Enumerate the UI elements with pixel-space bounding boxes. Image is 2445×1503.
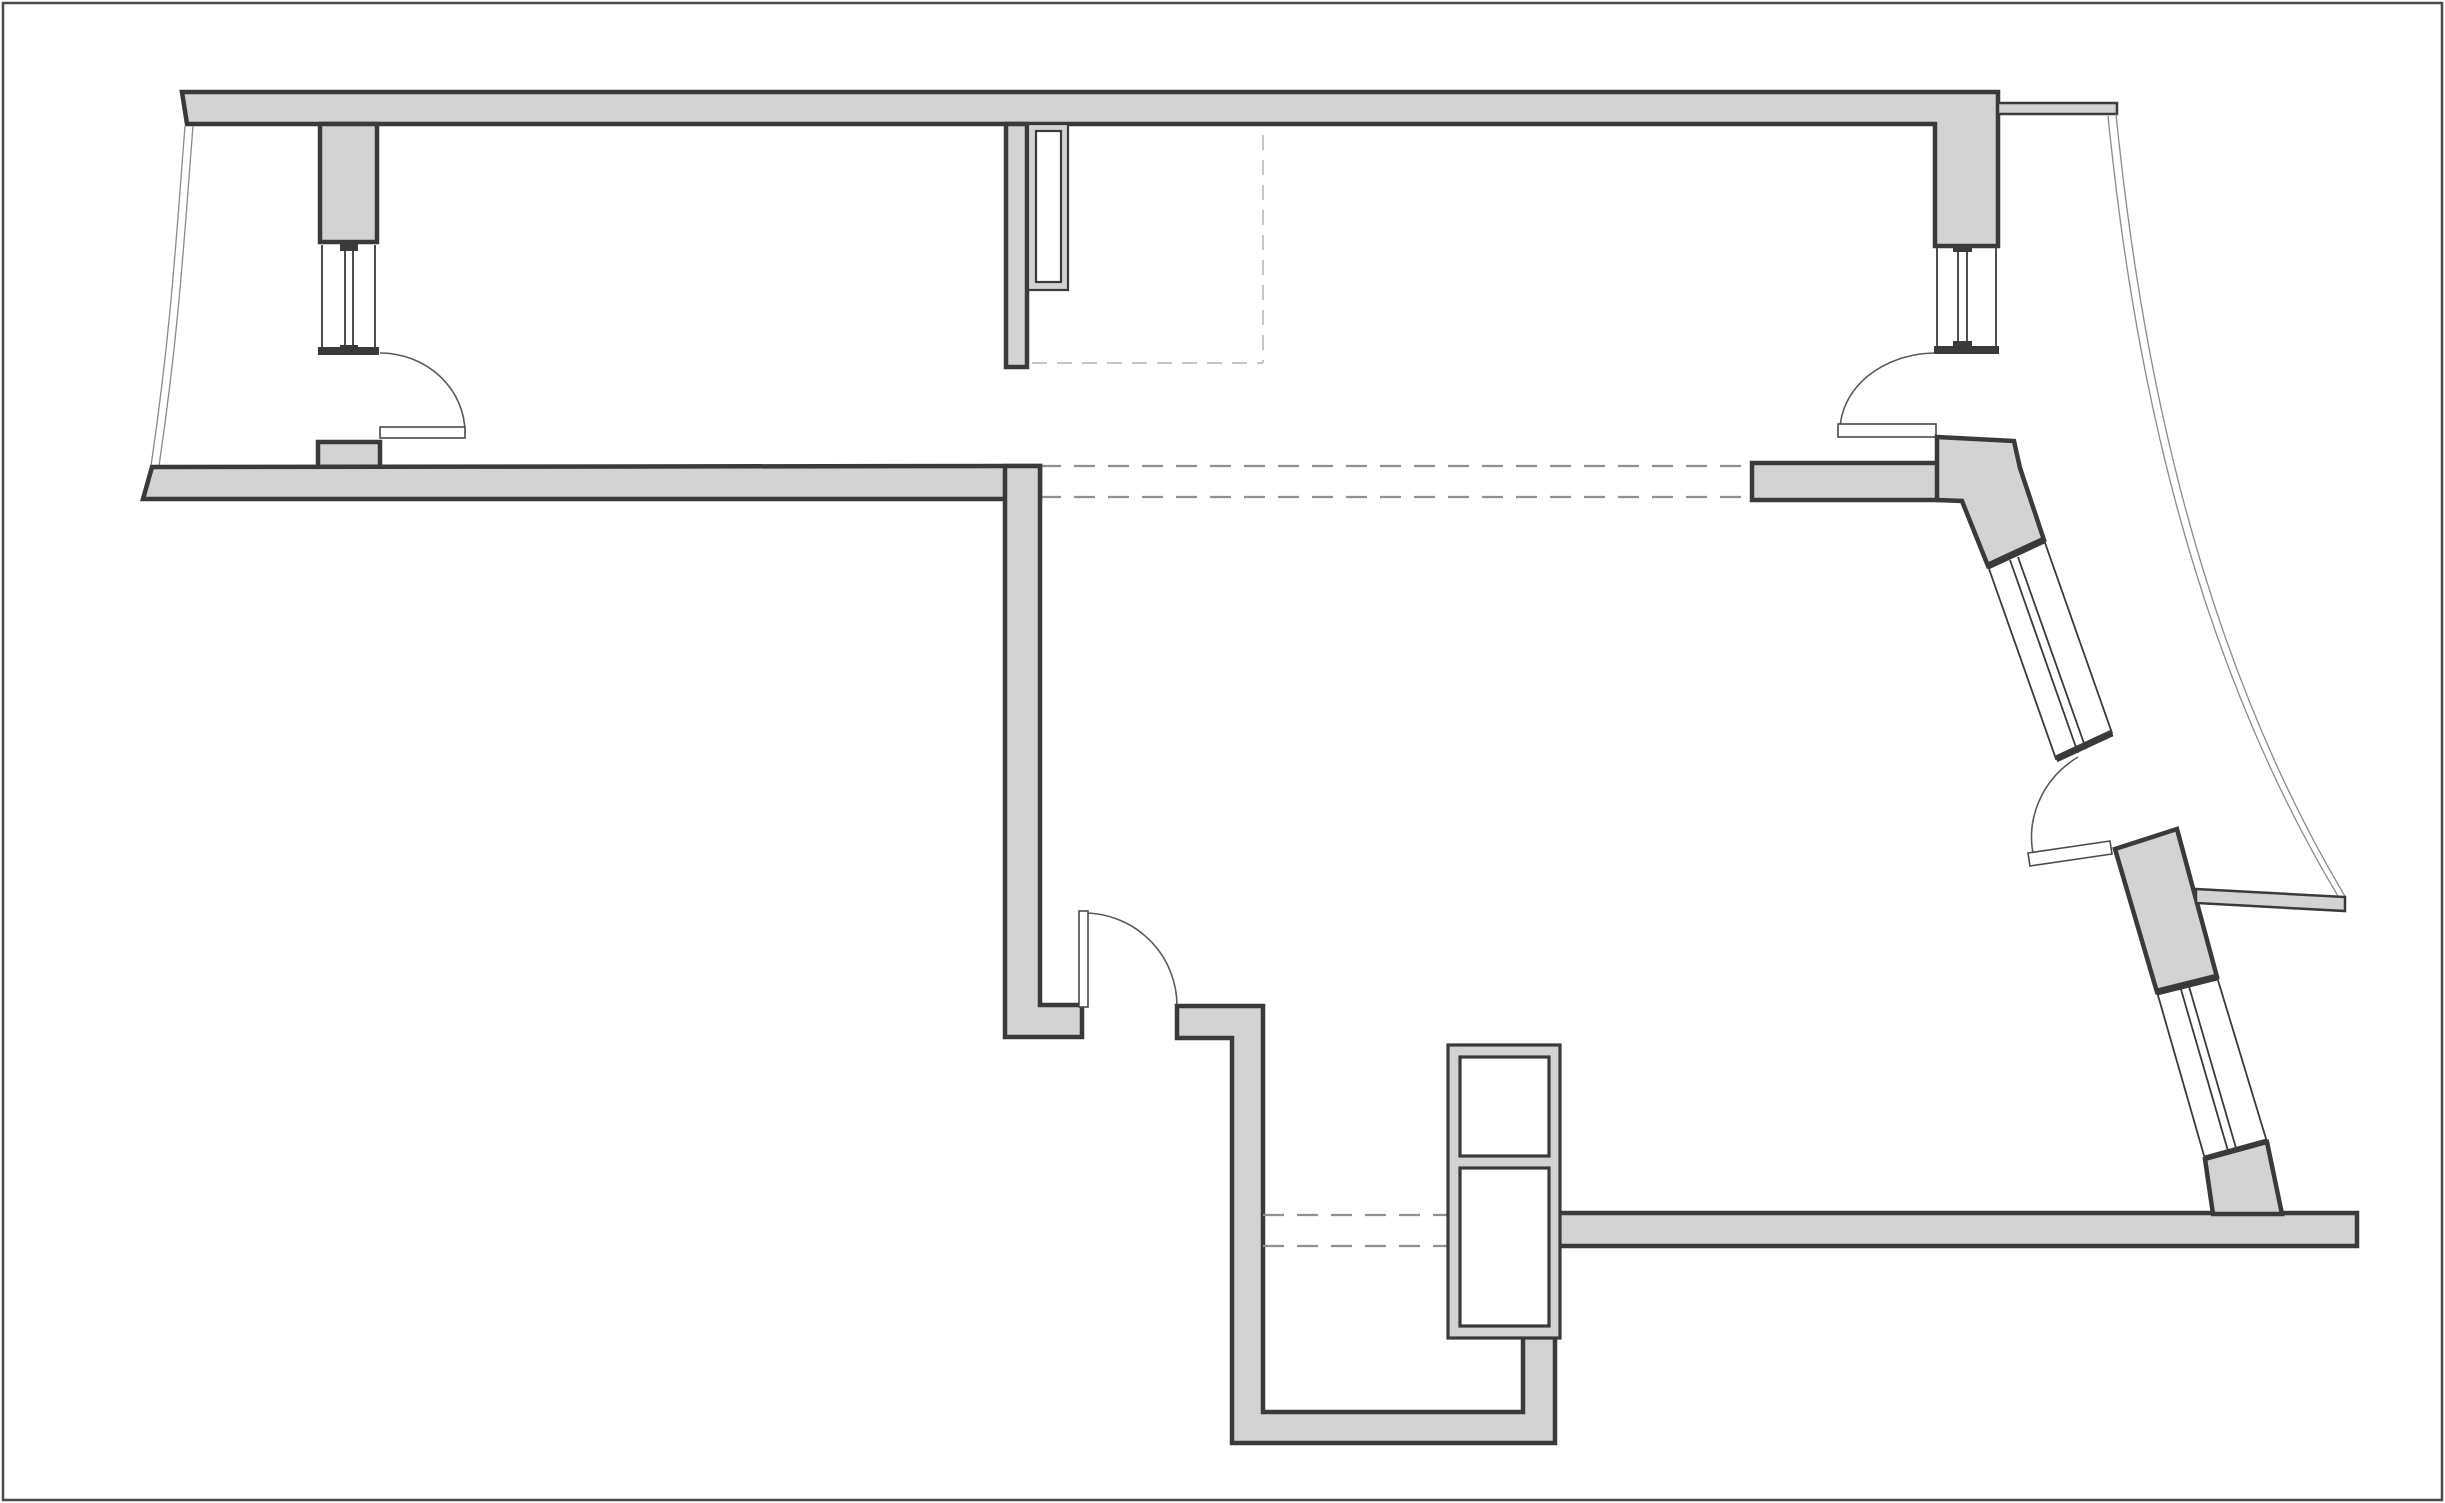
top-exterior-wall [182, 92, 1998, 246]
bay-door [2028, 757, 2112, 866]
hall-closet-pier [1006, 124, 1027, 367]
bay-lower-window [2157, 977, 2267, 1159]
corridor-opening-dashes [1040, 466, 1752, 497]
corridor-wall [1005, 466, 1082, 1037]
top-right-stub [1998, 103, 2117, 114]
hall-closet-duct [1028, 124, 1068, 290]
floor-plan-canvas [0, 0, 2445, 1503]
balcony-parapet-bar [2196, 889, 2345, 911]
utility-shaft [1448, 1045, 1560, 1338]
left-window [318, 244, 379, 355]
left-balcony-door [380, 353, 465, 438]
left-balcony-facade-curve [151, 126, 193, 466]
middle-wall-band [143, 466, 1040, 499]
right-window [1934, 245, 1999, 354]
upper-right-wall-band [1752, 463, 1940, 500]
bottom-exterior-wall [1523, 1213, 2357, 1246]
bay-middle-pier [2115, 829, 2217, 992]
floor-plan-drawing [0, 0, 2445, 1503]
left-lower-pier [318, 442, 380, 467]
left-window-pier [320, 124, 377, 242]
bay-upper-window [1988, 540, 2112, 759]
interior-door [1079, 911, 1177, 1007]
right-room-door [1838, 353, 1936, 437]
right-facade-curve [2108, 114, 2346, 901]
